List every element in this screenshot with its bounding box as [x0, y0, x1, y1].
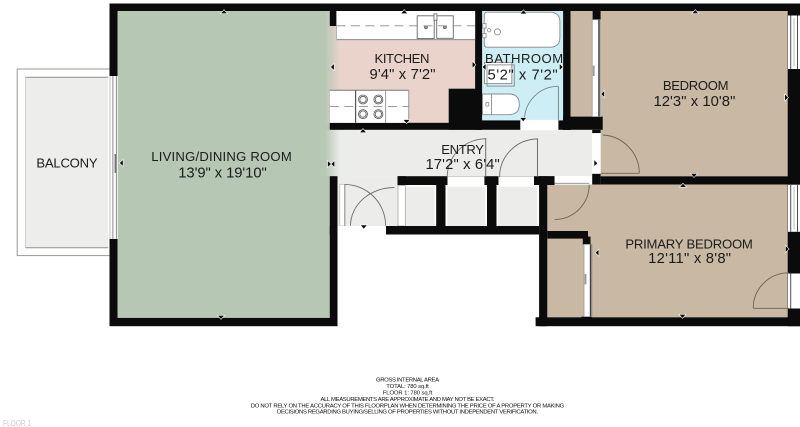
- svg-text:KITCHEN: KITCHEN: [375, 51, 430, 66]
- svg-text:ENTRY: ENTRY: [441, 142, 484, 157]
- svg-text:FLOOR 1: 780 sq.ft: FLOOR 1: 780 sq.ft: [383, 390, 433, 396]
- svg-text:5'2" x 7'2": 5'2" x 7'2": [488, 67, 558, 83]
- svg-text:17'2" x 6'4": 17'2" x 6'4": [425, 157, 499, 173]
- svg-text:TOTAL: 780 sq.ft: TOTAL: 780 sq.ft: [386, 384, 429, 390]
- svg-text:DO NOT RELY ON THE ACCURACY OF: DO NOT RELY ON THE ACCURACY OF THIS FLOO…: [251, 403, 565, 409]
- svg-text:12'11" x 8'8": 12'11" x 8'8": [648, 251, 731, 267]
- svg-text:DECISIONS REGARDING BUYING/SEL: DECISIONS REGARDING BUYING/SELLING OF PR…: [277, 410, 538, 416]
- svg-text:FLOOR 1: FLOOR 1: [3, 419, 31, 427]
- svg-text:9'4" x 7'2": 9'4" x 7'2": [369, 67, 435, 83]
- svg-text:PRIMARY BEDROOM: PRIMARY BEDROOM: [625, 237, 753, 252]
- svg-text:13'9" x 19'10": 13'9" x 19'10": [178, 166, 267, 182]
- svg-text:LIVING/DINING ROOM: LIVING/DINING ROOM: [151, 149, 292, 164]
- svg-text:GROSS INTERNAL AREA: GROSS INTERNAL AREA: [376, 378, 439, 384]
- svg-text:BATHROOM: BATHROOM: [485, 51, 563, 66]
- svg-text:BEDROOM: BEDROOM: [663, 78, 729, 93]
- svg-text:12'3" x 10'8": 12'3" x 10'8": [653, 94, 735, 110]
- svg-text:BALCONY: BALCONY: [36, 155, 97, 170]
- svg-text:ALL MEASUREMENTS ARE APPROXIMA: ALL MEASUREMENTS ARE APPROXIMATE AND MAY…: [321, 397, 495, 403]
